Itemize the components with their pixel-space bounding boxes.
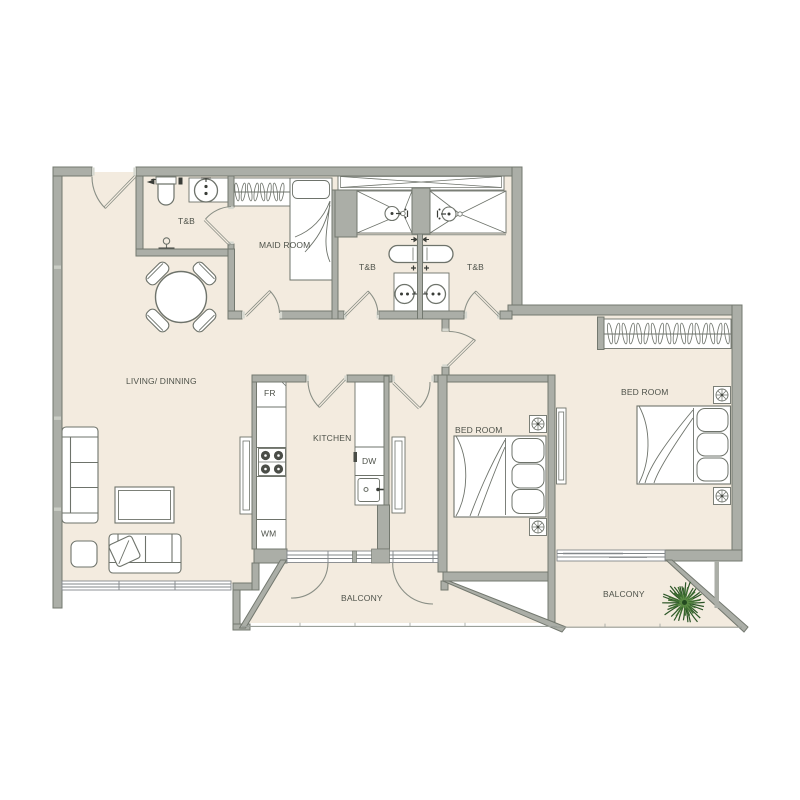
- svg-text:KITCHEN: KITCHEN: [313, 433, 351, 443]
- svg-text:DW: DW: [362, 456, 376, 466]
- svg-text:BED ROOM: BED ROOM: [455, 425, 502, 435]
- svg-text:BED ROOM: BED ROOM: [621, 387, 668, 397]
- svg-text:WM: WM: [261, 529, 276, 539]
- svg-text:T&B: T&B: [467, 262, 484, 272]
- svg-text:T&B: T&B: [178, 216, 195, 226]
- svg-text:MAID ROOM: MAID ROOM: [259, 240, 310, 250]
- svg-text:BALCONY: BALCONY: [341, 593, 383, 603]
- svg-text:T&B: T&B: [359, 262, 376, 272]
- svg-text:LIVING/ DINNING: LIVING/ DINNING: [126, 376, 197, 386]
- svg-text:FR: FR: [264, 388, 276, 398]
- svg-text:BALCONY: BALCONY: [603, 589, 645, 599]
